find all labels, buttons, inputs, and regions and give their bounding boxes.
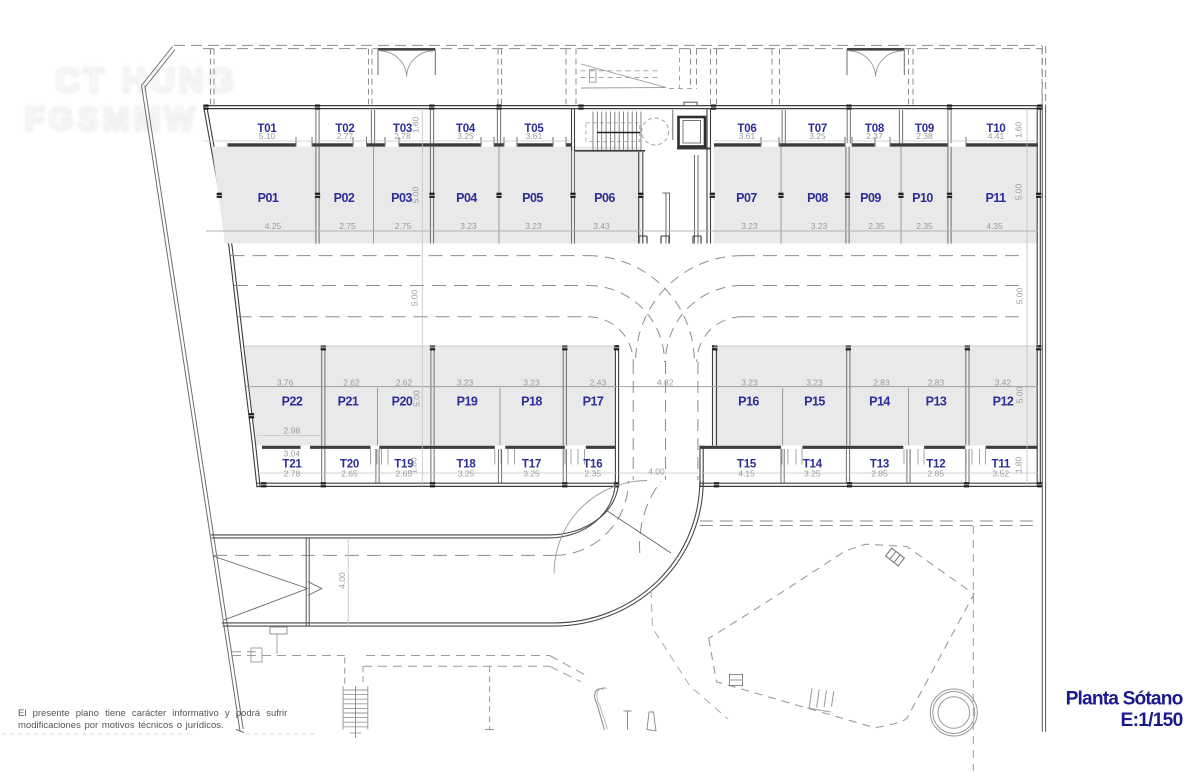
svg-text:2.35: 2.35 — [868, 221, 885, 231]
svg-text:P14: P14 — [869, 394, 890, 408]
svg-text:2.43: 2.43 — [590, 377, 607, 387]
svg-text:2.62: 2.62 — [396, 377, 413, 387]
svg-text:2.75: 2.75 — [395, 221, 412, 231]
svg-text:P20: P20 — [392, 394, 413, 408]
svg-text:Planta Sótano: Planta Sótano — [1066, 689, 1183, 710]
svg-text:3.76: 3.76 — [277, 377, 294, 387]
svg-text:3.52: 3.52 — [993, 468, 1010, 478]
svg-text:5.00: 5.00 — [411, 186, 421, 203]
svg-text:P04: P04 — [456, 191, 477, 205]
svg-text:5.00: 5.00 — [1014, 183, 1024, 200]
svg-text:4.41: 4.41 — [988, 131, 1005, 141]
svg-text:P02: P02 — [334, 191, 355, 205]
svg-text:3.42: 3.42 — [995, 377, 1012, 387]
svg-text:2.37: 2.37 — [866, 131, 883, 141]
svg-text:5.00: 5.00 — [412, 390, 422, 407]
svg-text:3.61: 3.61 — [526, 131, 543, 141]
svg-text:4.15: 4.15 — [738, 468, 755, 478]
svg-text:P03: P03 — [391, 191, 412, 205]
svg-text:3.23: 3.23 — [741, 377, 758, 387]
svg-text:3.23: 3.23 — [525, 221, 542, 231]
svg-text:2.35: 2.35 — [916, 221, 933, 231]
svg-text:4.82: 4.82 — [657, 377, 674, 387]
svg-text:5.00: 5.00 — [410, 289, 420, 306]
svg-text:2.77: 2.77 — [337, 131, 354, 141]
svg-text:P22: P22 — [282, 394, 303, 408]
svg-text:P13: P13 — [926, 394, 947, 408]
svg-text:3.23: 3.23 — [523, 377, 540, 387]
svg-text:P12: P12 — [993, 394, 1014, 408]
svg-text:P17: P17 — [583, 394, 604, 408]
svg-text:2.35: 2.35 — [585, 468, 602, 478]
svg-text:3.23: 3.23 — [806, 377, 823, 387]
svg-text:P21: P21 — [338, 394, 359, 408]
svg-text:P07: P07 — [736, 191, 757, 205]
svg-text:3.23: 3.23 — [457, 377, 474, 387]
svg-text:1.60: 1.60 — [1014, 121, 1024, 138]
svg-text:2.78: 2.78 — [394, 131, 411, 141]
svg-text:2.98: 2.98 — [284, 426, 301, 436]
svg-text:3.25: 3.25 — [457, 131, 474, 141]
svg-text:P06: P06 — [594, 191, 615, 205]
svg-text:3.25: 3.25 — [523, 468, 540, 478]
svg-text:3.23: 3.23 — [811, 221, 828, 231]
svg-text:P01: P01 — [258, 191, 279, 205]
svg-text:P15: P15 — [804, 394, 825, 408]
svg-text:3.61: 3.61 — [739, 131, 756, 141]
svg-text:P10: P10 — [912, 191, 933, 205]
svg-text:2.62: 2.62 — [343, 377, 360, 387]
svg-text:2.85: 2.85 — [871, 468, 888, 478]
svg-text:modificaciones por motivos téc: modificaciones por motivos técnicos o ju… — [18, 720, 224, 731]
svg-text:P18: P18 — [521, 394, 542, 408]
svg-text:5.00: 5.00 — [1015, 287, 1025, 304]
svg-text:3.43: 3.43 — [593, 221, 610, 231]
svg-text:1.80: 1.80 — [1014, 456, 1024, 473]
svg-text:3.04: 3.04 — [284, 449, 301, 459]
svg-text:El presente plano tiene caráct: El presente plano tiene carácter informa… — [18, 708, 287, 719]
svg-text:1.80: 1.80 — [409, 457, 419, 474]
svg-text:4.35: 4.35 — [986, 221, 1003, 231]
svg-text:P08: P08 — [807, 191, 828, 205]
svg-text:P05: P05 — [522, 191, 543, 205]
svg-text:3.23: 3.23 — [741, 221, 758, 231]
svg-text:5.10: 5.10 — [259, 131, 276, 141]
svg-text:P11: P11 — [985, 191, 1006, 205]
svg-text:3.23: 3.23 — [460, 221, 477, 231]
svg-text:3.25: 3.25 — [809, 131, 826, 141]
svg-text:FGSMMW: FGSMMW — [25, 101, 198, 137]
svg-text:P16: P16 — [738, 394, 759, 408]
svg-text:4.25: 4.25 — [265, 221, 282, 231]
svg-text:3.25: 3.25 — [804, 468, 821, 478]
svg-text:P09: P09 — [860, 191, 881, 205]
svg-text:2.83: 2.83 — [928, 377, 945, 387]
svg-text:4.00: 4.00 — [337, 572, 347, 589]
svg-text:2.83: 2.83 — [873, 377, 890, 387]
svg-text:3.25: 3.25 — [458, 468, 475, 478]
svg-text:2.38: 2.38 — [916, 131, 933, 141]
svg-text:4.00: 4.00 — [648, 467, 665, 477]
svg-text:2.65: 2.65 — [341, 468, 358, 478]
svg-text:2.85: 2.85 — [928, 468, 945, 478]
svg-text:P19: P19 — [457, 394, 478, 408]
svg-text:5.00: 5.00 — [1015, 386, 1025, 403]
svg-text:2.75: 2.75 — [339, 221, 356, 231]
svg-text:1.60: 1.60 — [411, 116, 421, 133]
svg-text:E:1/150: E:1/150 — [1121, 710, 1183, 731]
svg-text:2.78: 2.78 — [284, 468, 301, 478]
